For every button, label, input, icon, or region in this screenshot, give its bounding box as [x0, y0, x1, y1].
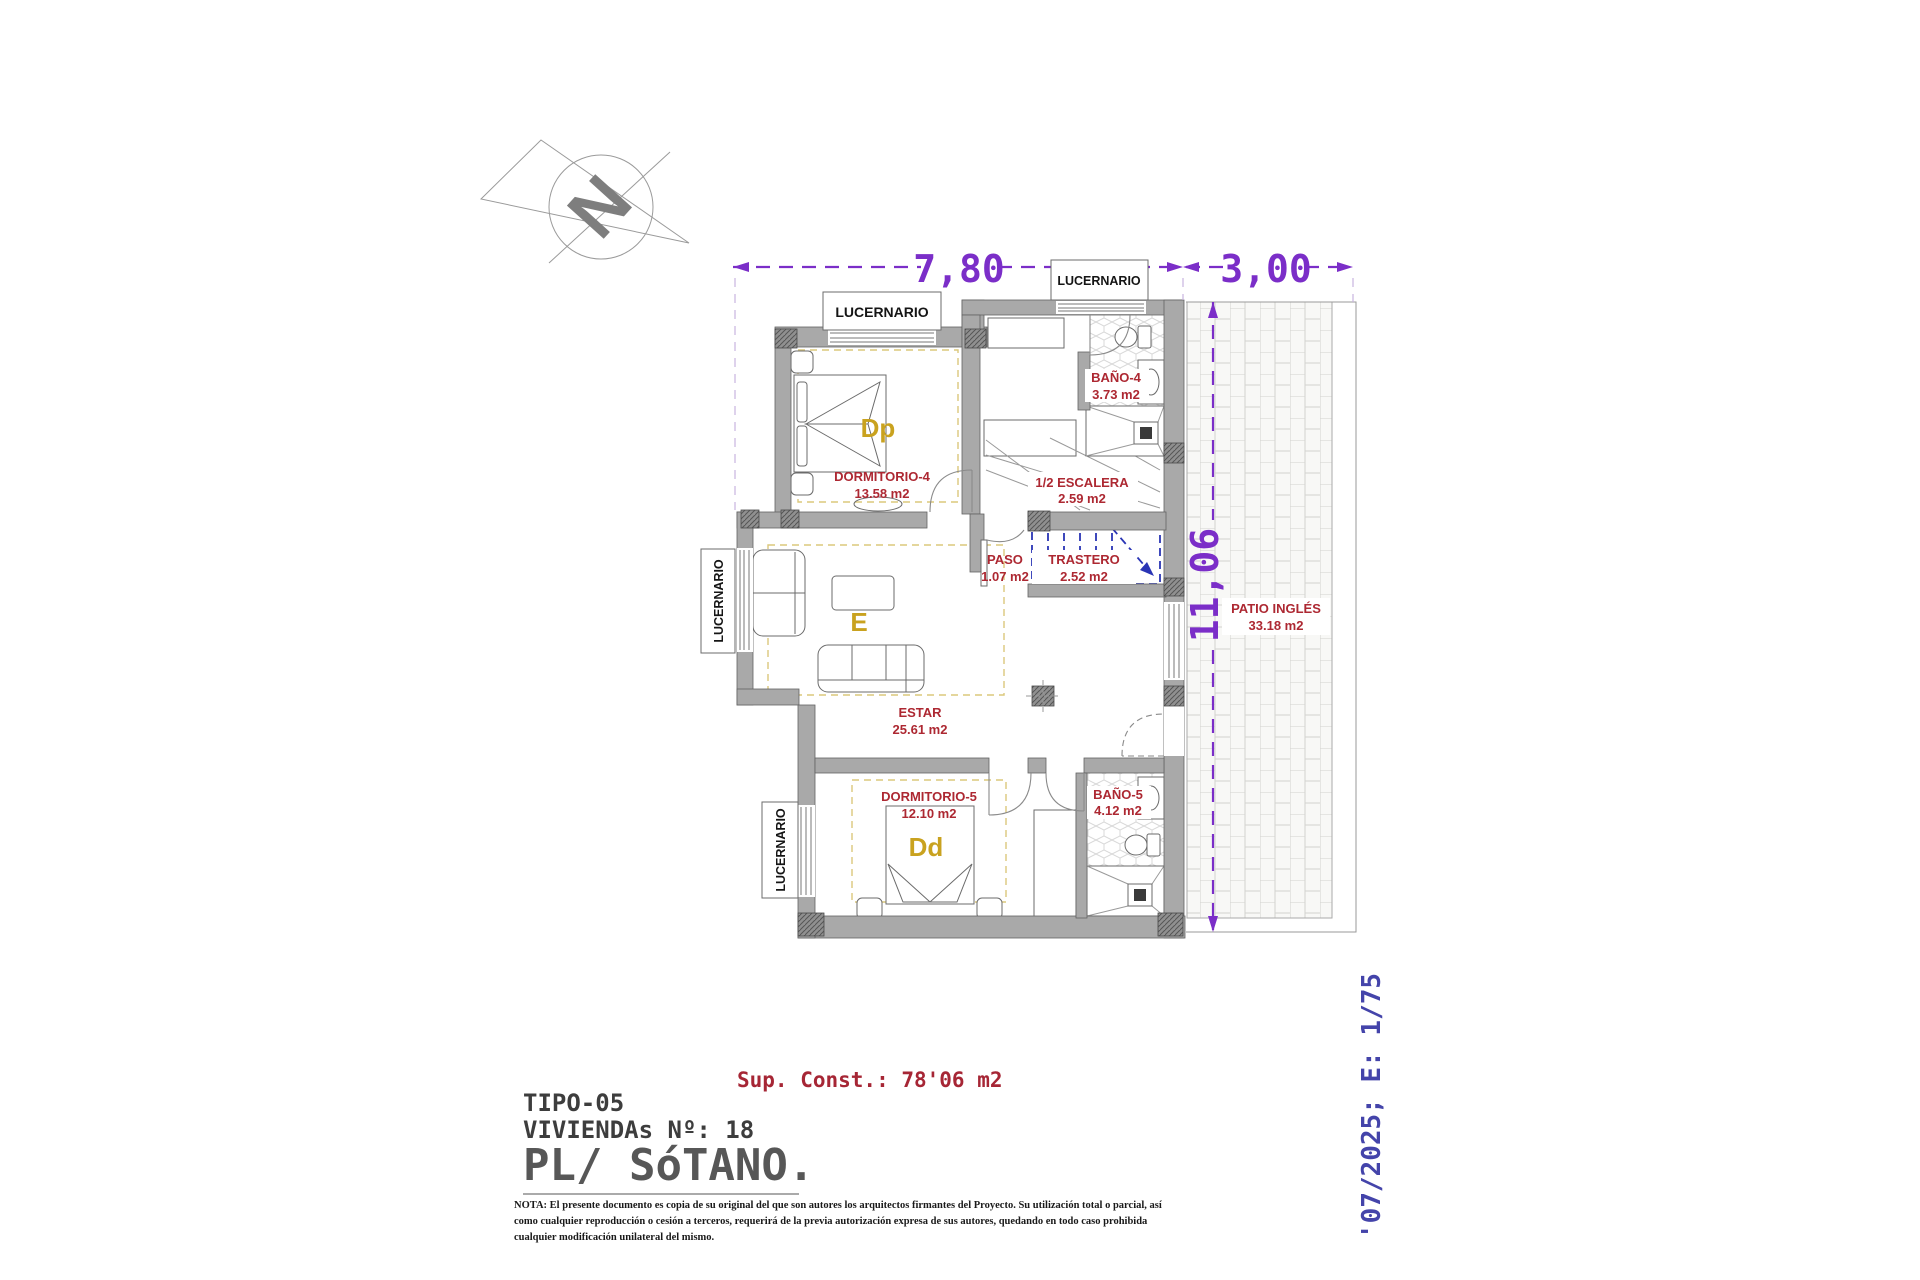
bano5-label: BAÑO-5 [1093, 787, 1143, 802]
dormitorio5-furniture [857, 806, 1002, 919]
dormitorio4-area: 13.58 m2 [855, 486, 910, 501]
bano4-label: BAÑO-4 [1091, 370, 1142, 385]
north-compass: N [481, 140, 689, 263]
dormitorio4-label: DORMITORIO-4 [834, 469, 931, 484]
sup-const-text: Sup. Const.: 78'06 m2 [737, 1068, 1003, 1092]
estar-letter: E [850, 607, 867, 637]
trastero-label: TRASTERO [1048, 552, 1120, 567]
north-letter: N [553, 161, 647, 253]
skylight-top-left-label: LUCERNARIO [835, 304, 928, 320]
title-block: Sup. Const.: 78'06 m2 TIPO-05 VIVIENDAs … [514, 973, 1387, 1243]
dormitorio4-letter: Dp [861, 413, 896, 443]
patio-label: PATIO INGLÉS [1231, 601, 1321, 616]
skylight-left-label: LUCERNARIO [712, 559, 726, 643]
dimension-top-width: 7,80 [913, 247, 1005, 291]
date-scale-text: '07/2025; E: 1/75 [1357, 973, 1387, 1239]
note-line-2: como cualquier reproducción o cesión a t… [514, 1216, 1148, 1227]
dimension-patio-width: 3,00 [1220, 247, 1312, 291]
trastero-area: 2.52 m2 [1060, 569, 1108, 584]
skylight-top-center-label: LUCERNARIO [1057, 274, 1141, 288]
estar-label: ESTAR [898, 705, 942, 720]
tipo-text: TIPO-05 [523, 1089, 624, 1117]
bano5-area: 4.12 m2 [1094, 803, 1142, 818]
escalera-area: 2.59 m2 [1058, 491, 1106, 506]
dormitorio5-wardrobe [1034, 810, 1076, 918]
floor-plan-sheet: N [0, 0, 1920, 1280]
dimension-right-height: 11,06 [1183, 528, 1227, 642]
bano4-area: 3.73 m2 [1092, 387, 1140, 402]
dormitorio5-letter: Dd [909, 832, 944, 862]
estar-area: 25.61 m2 [893, 722, 948, 737]
skylight-bottom-left-label: LUCERNARIO [774, 808, 788, 892]
dormitorio5-area: 12.10 m2 [902, 806, 957, 821]
plano-title-text: PL/ SóTANO. [523, 1140, 814, 1191]
floor-plan-drawing: N [0, 0, 1920, 1280]
paso-area: 1.07 m2 [981, 569, 1029, 584]
patio-area: 33.18 m2 [1249, 618, 1304, 633]
dormitorio5-label: DORMITORIO-5 [881, 789, 977, 804]
paso-label: PASO [987, 552, 1023, 567]
escalera-label: 1/2 ESCALERA [1035, 475, 1129, 490]
note-line-3: cualquier modificación unilateral del mi… [514, 1232, 715, 1243]
estar-furniture [753, 550, 924, 692]
note-line-1: NOTA: El presente documento es copia de … [514, 1200, 1163, 1211]
